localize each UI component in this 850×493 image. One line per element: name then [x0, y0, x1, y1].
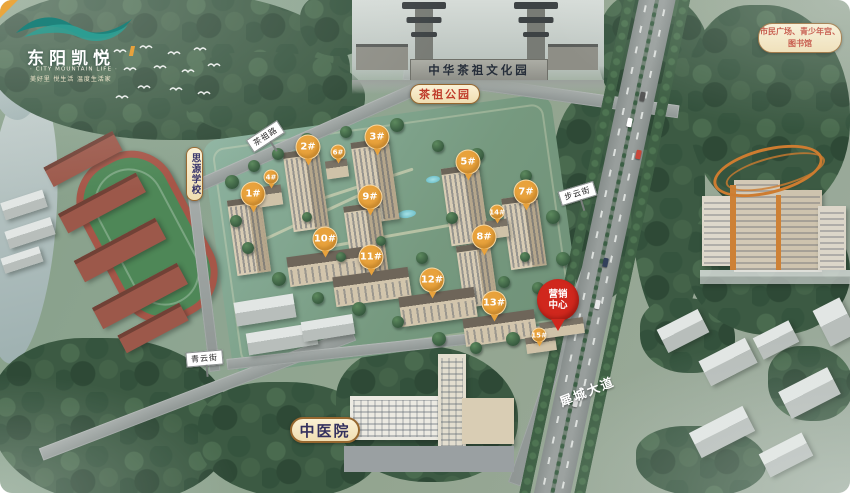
- school-label[interactable]: 思源学校: [186, 147, 203, 201]
- gate-wall-left: [356, 44, 408, 70]
- building-marker-6[interactable]: 6#: [331, 145, 346, 164]
- marker-tail: [480, 249, 488, 256]
- tree: [230, 215, 242, 227]
- building-marker-14[interactable]: 14#: [490, 205, 505, 224]
- civic-building: [778, 190, 822, 272]
- gate-sign: 中华茶祖文化园: [410, 59, 548, 81]
- marker-tail: [268, 184, 274, 189]
- gate-tower-right: [514, 2, 558, 66]
- building-marker-11[interactable]: 11#: [359, 245, 384, 276]
- industrial-building: [759, 433, 814, 478]
- building-marker-label: 7#: [514, 180, 539, 205]
- tree: [225, 175, 239, 189]
- building-marker-12[interactable]: 12#: [420, 268, 445, 299]
- tree: [242, 242, 254, 254]
- tree: [432, 332, 446, 346]
- tree: [272, 272, 286, 286]
- building-marker-2[interactable]: 2#: [296, 135, 321, 166]
- tree: [446, 212, 458, 224]
- sales-center-pin[interactable]: 营销 中心: [537, 279, 579, 331]
- tree: [336, 252, 346, 262]
- building-marker-label: 11#: [359, 245, 384, 270]
- building-marker-label: 4#: [264, 170, 279, 185]
- building-marker-9[interactable]: 9#: [358, 185, 383, 216]
- building-marker-1[interactable]: 1#: [241, 182, 266, 213]
- tree: [432, 140, 444, 152]
- civic-label-line2: 图书馆: [788, 38, 812, 50]
- marker-tail: [304, 159, 312, 166]
- sales-pin-line1: 营销: [548, 289, 567, 300]
- logo-subtitle: · CITY MOUNTAIN LIFE ·: [30, 66, 118, 72]
- pin-tail: [551, 319, 565, 331]
- building-marker-label: 13#: [482, 291, 507, 316]
- brand-logo: 东阳凯悦 · CITY MOUNTAIN LIFE · 美好里 悦生活 温度生活…: [14, 8, 134, 50]
- tree: [352, 302, 366, 316]
- building-marker-3[interactable]: 3#: [365, 125, 390, 156]
- site-masterplan-image: 中华茶祖文化园 茶祖公园 市民广场、青少年宫、 图书馆 思源学校 中医院 犀城大…: [0, 0, 850, 493]
- tree: [470, 342, 482, 354]
- tree: [556, 252, 570, 266]
- building-marker-label: 2#: [296, 135, 321, 160]
- marker-tail: [249, 206, 257, 213]
- tree: [248, 160, 260, 172]
- marker-tail: [366, 209, 374, 216]
- tree: [392, 316, 404, 328]
- civic-label-line1: 市民广场、青少年宫、: [760, 26, 840, 38]
- tree: [416, 252, 428, 264]
- marker-tail: [490, 315, 498, 322]
- building-marker-label: 8#: [472, 225, 497, 250]
- tree: [520, 252, 530, 262]
- hospital-label[interactable]: 中医院: [290, 417, 360, 443]
- building-marker-label: 12#: [420, 268, 445, 293]
- building-marker-7[interactable]: 7#: [514, 180, 539, 211]
- building-marker-5[interactable]: 5#: [456, 150, 481, 181]
- tree: [312, 292, 324, 304]
- building-marker-label: 5#: [456, 150, 481, 175]
- hospital-side-wing: [462, 398, 514, 444]
- tree: [546, 210, 560, 224]
- tree: [498, 276, 510, 288]
- civic-accent: [730, 185, 736, 270]
- hospital-main-wing: [350, 396, 446, 440]
- road-sign-青云街: 青云街: [185, 349, 223, 367]
- building-marker-8[interactable]: 8#: [472, 225, 497, 256]
- sales-pin-line2: 中心: [548, 300, 567, 311]
- marker-tail: [536, 342, 542, 347]
- tree: [340, 126, 352, 138]
- tree: [302, 212, 312, 222]
- building-marker-label: 9#: [358, 185, 383, 210]
- building-marker-label: 10#: [313, 227, 338, 252]
- marker-tail: [367, 269, 375, 276]
- marker-tail: [522, 204, 530, 211]
- tree: [390, 118, 404, 132]
- civic-accent: [776, 195, 781, 270]
- marker-tail: [321, 251, 329, 258]
- logo-wave-icon: [14, 8, 134, 46]
- hospital-plaza: [344, 446, 514, 472]
- logo-tagline: 美好里 悦生活 温度生活家: [30, 74, 112, 83]
- bird-flock: [110, 42, 230, 112]
- corner-ribbon: [0, 0, 18, 18]
- marker-tail: [494, 219, 500, 224]
- gate-tower-left: [402, 2, 446, 66]
- marker-tail: [373, 149, 381, 156]
- civic-building: [818, 206, 846, 270]
- building-marker-label: 1#: [241, 182, 266, 207]
- building-marker-13[interactable]: 13#: [482, 291, 507, 322]
- marker-tail: [464, 174, 472, 181]
- tree: [506, 332, 520, 346]
- building-marker-label: 3#: [365, 125, 390, 150]
- marker-tail: [335, 159, 341, 164]
- building-marker-4[interactable]: 4#: [264, 170, 279, 189]
- tea-park-gate-photo: 中华茶祖文化园: [352, 0, 604, 94]
- marker-tail: [428, 292, 436, 299]
- building-marker-label: 6#: [331, 145, 346, 160]
- civic-label[interactable]: 市民广场、青少年宫、 图书馆: [758, 23, 842, 53]
- civic-plaza: [700, 270, 850, 284]
- building-marker-label: 14#: [490, 205, 505, 220]
- tea-park-label[interactable]: 茶祖公园: [410, 84, 480, 104]
- building-marker-10[interactable]: 10#: [313, 227, 338, 258]
